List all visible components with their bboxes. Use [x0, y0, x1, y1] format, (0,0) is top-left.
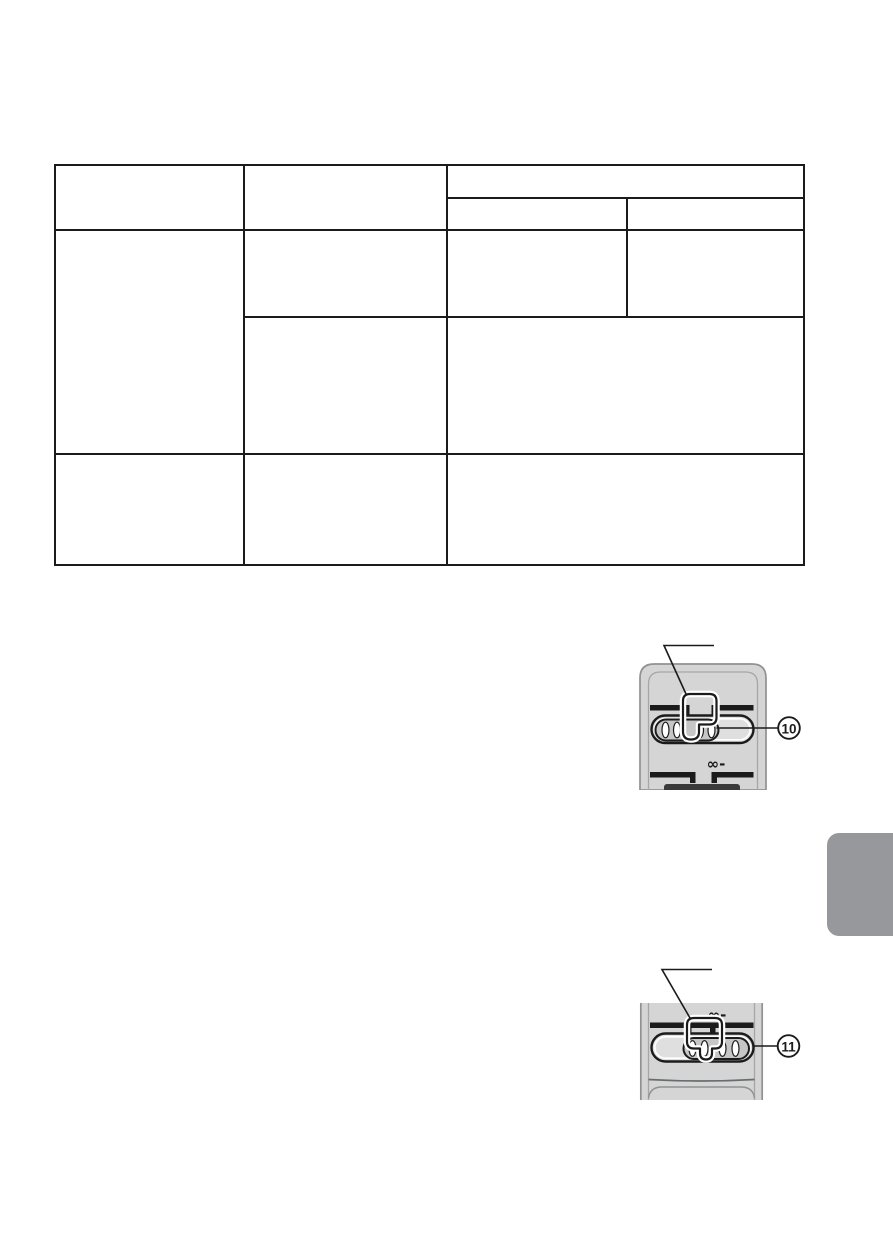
table-cell-header-col34	[448, 166, 802, 196]
table-cell-body2-col34	[448, 455, 802, 563]
figure-remote-switch-11: ∞- 11	[595, 955, 825, 1101]
table-cell-body1b-col2	[245, 318, 446, 453]
knob-grip-slot	[674, 722, 681, 738]
figure-remote-switch-10: ∞- 10	[595, 640, 825, 790]
knob-grip-slot	[662, 722, 669, 738]
table-cell-body1a-col3	[448, 230, 626, 315]
table-cell-body2-col2	[245, 455, 446, 563]
table-cell-body2-col1	[56, 455, 243, 563]
knob-grip-slot	[732, 1041, 739, 1057]
section-tab	[827, 833, 893, 936]
table-cell-body1a-col2	[245, 230, 446, 315]
callout-number-11: 11	[781, 1039, 796, 1054]
callout-number-10: 10	[781, 721, 796, 736]
partial-button	[664, 784, 740, 790]
table-cell-header-col2	[245, 166, 446, 228]
table-cell-body1a-col4	[628, 230, 802, 315]
infinity-marking-label: ∞-	[707, 755, 726, 773]
manual-page: ∞- 10 ∞-	[0, 0, 893, 1259]
table-cell-body1b-col34	[448, 318, 802, 453]
spec-table	[54, 164, 805, 566]
table-cell-header-col1	[56, 166, 243, 228]
table-cell-subheader-col4	[628, 198, 802, 228]
table-cell-body1-col1	[56, 230, 243, 452]
table-cell-subheader-col3	[448, 198, 626, 228]
